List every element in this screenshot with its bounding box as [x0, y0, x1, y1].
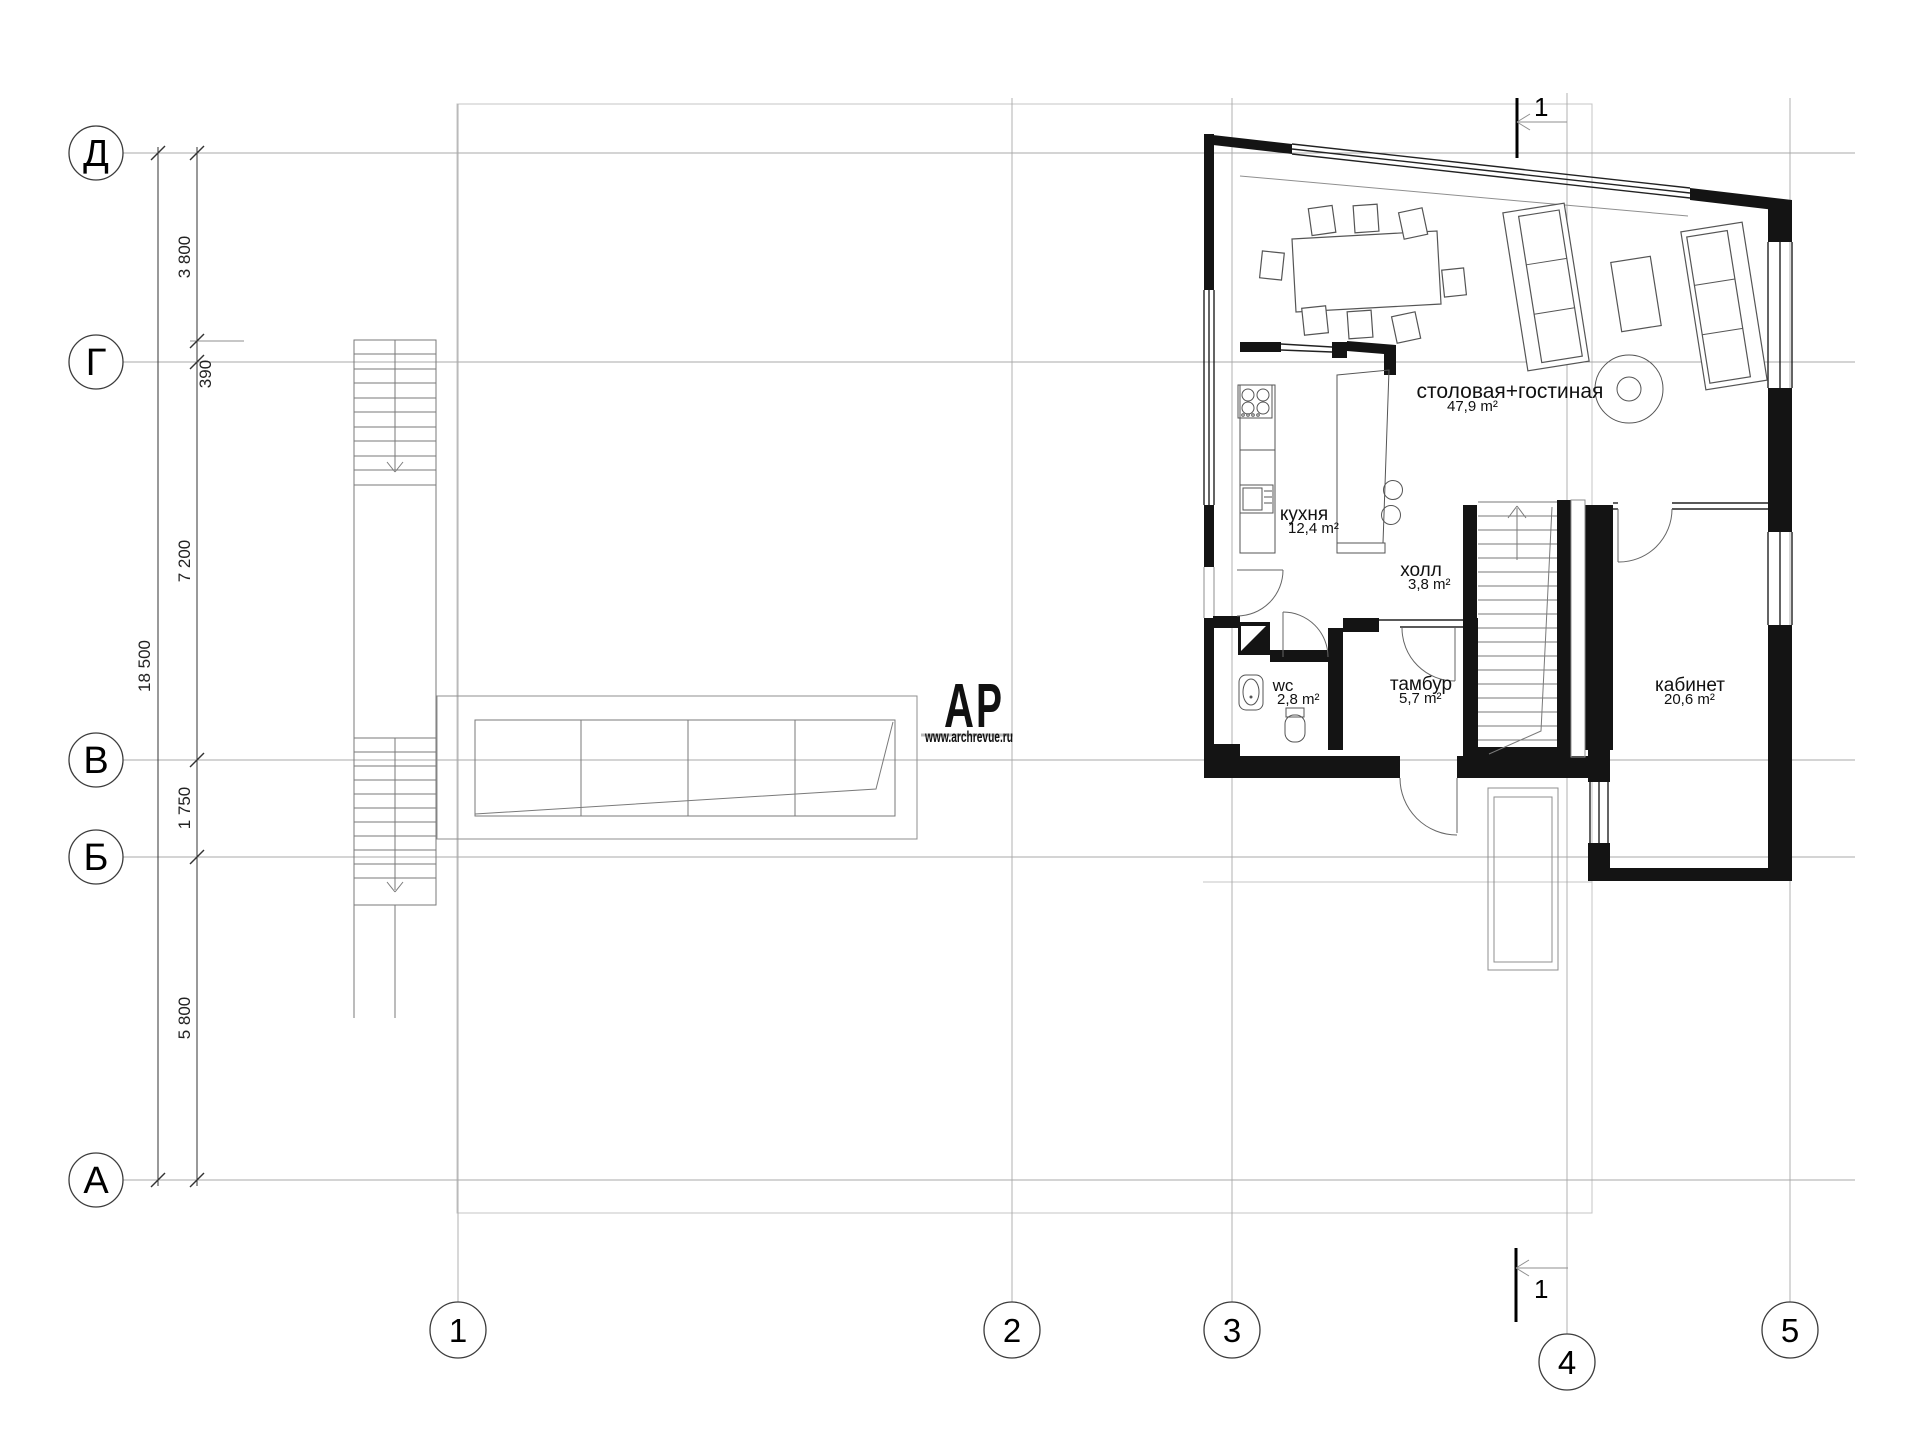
dim-d-g: 3 800: [175, 236, 194, 279]
wc-fixtures: [1238, 622, 1305, 742]
row-axis-bubbles: Д Г В Б А: [69, 126, 123, 1207]
sofa-right: [1681, 222, 1767, 390]
pool-basin: [475, 720, 895, 816]
axis-label-2: 2: [1003, 1312, 1021, 1349]
room-area-tambour: 5,7 m²: [1399, 690, 1442, 707]
logo-url: www.archrevue.ru: [924, 729, 1013, 746]
axis-label-B: Б: [84, 837, 109, 879]
exterior-stairs: [354, 340, 436, 1018]
axis-label-4: 4: [1558, 1344, 1576, 1381]
axis-label-3: 3: [1223, 1312, 1241, 1349]
column: [1332, 342, 1347, 358]
watermark-logo: А Р www.archrevue.ru: [921, 672, 1013, 746]
cabinet-door-arc: [1618, 509, 1672, 562]
dim-g-v: 7 200: [175, 540, 194, 583]
room-area-kitchen: 12,4 m²: [1288, 520, 1339, 537]
pool: [437, 696, 917, 839]
staircase: [1478, 502, 1557, 754]
pool-floor-profile: [475, 722, 893, 814]
bar-stool: [1384, 481, 1403, 500]
kitchen-door-arc: [1237, 570, 1283, 616]
section-label-bottom: 1: [1534, 1274, 1548, 1304]
col-axis-bubbles: 1 2 3 4 5: [430, 1302, 1818, 1390]
dim-v-b: 1 750: [175, 787, 194, 830]
axis-label-5: 5: [1781, 1312, 1799, 1349]
axis-label-V: В: [83, 740, 108, 782]
entry-door-arc: [1400, 778, 1457, 835]
floor-plan-page: 18 500 3 800 390 7 200 1 750 5 800 Д Г В…: [0, 0, 1920, 1439]
kitchen-island: [1337, 370, 1389, 543]
floor-plan-canvas: 18 500 3 800 390 7 200 1 750 5 800 Д Г В…: [0, 0, 1920, 1439]
dim-b-a: 5 800: [175, 997, 194, 1040]
room-area-living: 47,9 m²: [1447, 398, 1498, 415]
room-area-wc: 2,8 m²: [1277, 691, 1320, 708]
room-area-hall: 3,8 m²: [1408, 576, 1451, 593]
entrance-porch: [1488, 788, 1558, 970]
dimension-chain: 18 500 3 800 390 7 200 1 750 5 800: [135, 146, 244, 1187]
toilet-icon: [1286, 708, 1304, 717]
dim-overall: 18 500: [135, 640, 154, 692]
section-label-top: 1: [1534, 92, 1548, 122]
kitchen-sink-icon: [1240, 485, 1273, 513]
coffee-table: [1611, 256, 1661, 331]
dining-table: [1292, 231, 1441, 312]
room-area-cabinet: 20,6 m²: [1664, 691, 1715, 708]
axis-label-A: А: [83, 1160, 109, 1202]
round-side-table: [1595, 355, 1663, 423]
section-mark-top: 1: [1517, 92, 1567, 158]
axis-label-G: Г: [86, 342, 107, 384]
sofa-left: [1503, 203, 1589, 371]
dim-offset-390: 390: [196, 360, 215, 388]
axis-label-D: Д: [83, 133, 109, 175]
axis-label-1: 1: [449, 1312, 467, 1349]
pool-deck: [437, 696, 917, 839]
room-label-living: столовая+гостиная: [1417, 380, 1604, 403]
section-mark-bottom: 1: [1516, 1248, 1568, 1322]
